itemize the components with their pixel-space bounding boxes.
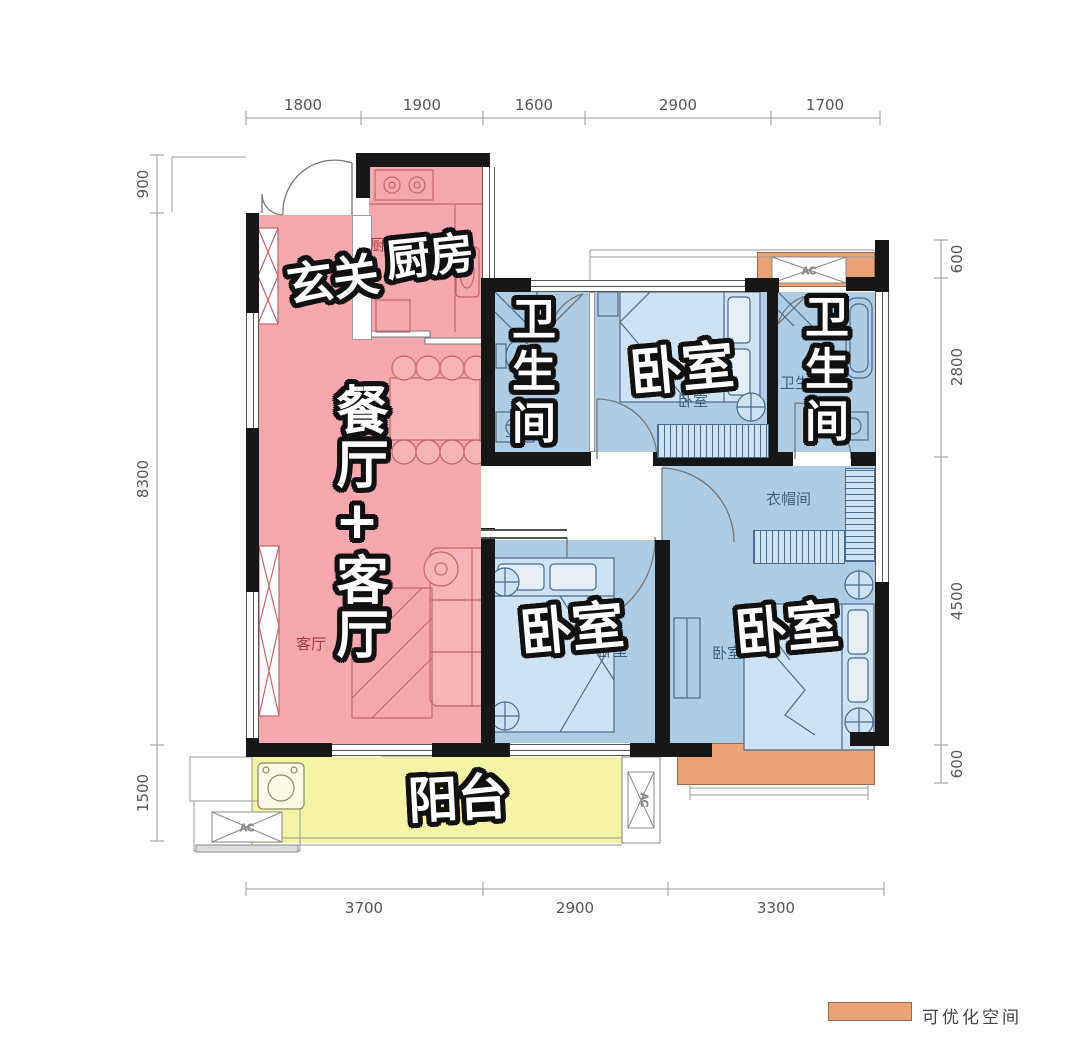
- window: [246, 592, 259, 738]
- entry-label: 玄关: [284, 251, 382, 309]
- window: [591, 280, 745, 292]
- wall: [246, 428, 259, 592]
- legend-swatch: [828, 1002, 912, 1021]
- wall: [630, 743, 712, 757]
- dim-left-2: 8300: [134, 460, 152, 498]
- ac-label-left: AC: [240, 823, 254, 834]
- wall: [851, 452, 876, 466]
- wall: [481, 278, 495, 466]
- window: [246, 313, 259, 428]
- window: [510, 744, 630, 756]
- wall: [356, 153, 490, 167]
- wall: [356, 153, 370, 198]
- cloakroom-small-label: 衣帽间: [766, 492, 811, 507]
- wall: [246, 743, 332, 757]
- dim-right-2: 2800: [948, 348, 966, 386]
- dim-top-5: 1700: [806, 96, 844, 114]
- wall: [481, 528, 495, 746]
- wall: [481, 452, 591, 466]
- window: [875, 292, 889, 582]
- bath-bed-divider: [589, 292, 595, 452]
- dim-top-4: 2900: [659, 96, 697, 114]
- dim-bottom-1: 3700: [345, 899, 383, 917]
- bed-mid-label: 卧室: [518, 600, 626, 661]
- wall: [655, 540, 670, 746]
- dim-top-1: 1800: [284, 96, 322, 114]
- wardrobe: [753, 530, 845, 564]
- dim-right-1: 600: [948, 245, 966, 274]
- wardrobe: [657, 424, 769, 458]
- kitchen-label: 厨房: [384, 232, 476, 285]
- wall: [875, 582, 889, 746]
- dim-top-3: 1600: [515, 96, 553, 114]
- dim-bottom-2: 2900: [556, 899, 594, 917]
- balcony-door-window: [332, 744, 432, 756]
- bed-right-label: 卧室: [733, 600, 841, 661]
- balcony-label: 阳台: [407, 771, 509, 826]
- washing-machine-icon: [258, 763, 304, 809]
- living-small-label: 客厅: [296, 637, 326, 652]
- dim-right-4: 600: [948, 750, 966, 779]
- window: [531, 280, 591, 292]
- ac-label-top: AC: [802, 266, 816, 277]
- dim-left-3: 1500: [134, 774, 152, 812]
- ac-label-balcony: AC: [638, 793, 649, 807]
- wall: [432, 743, 510, 757]
- wall: [777, 452, 793, 466]
- plan-linework: AC AC AC: [0, 0, 1080, 1056]
- wardrobe: [845, 468, 875, 562]
- dining-living-label: 餐厅+客厅: [331, 383, 383, 661]
- floor-plan: AC AC AC: [0, 0, 1080, 1056]
- window: [482, 167, 495, 280]
- legend-label: 可优化空间: [922, 1003, 1022, 1028]
- wall: [745, 278, 779, 292]
- dim-top-2: 1900: [403, 96, 441, 114]
- wall: [850, 732, 889, 746]
- bath-left-label: 卫生间: [507, 296, 551, 452]
- dim-bottom-3: 3300: [757, 899, 795, 917]
- bed-top-label: 卧室: [628, 340, 736, 401]
- dim-left-1: 900: [134, 170, 152, 199]
- bath-right-label: 卫生间: [800, 294, 844, 450]
- wall: [875, 240, 889, 292]
- dim-right-3: 4500: [948, 582, 966, 620]
- wall: [246, 213, 259, 313]
- thin-wall: [481, 529, 567, 539]
